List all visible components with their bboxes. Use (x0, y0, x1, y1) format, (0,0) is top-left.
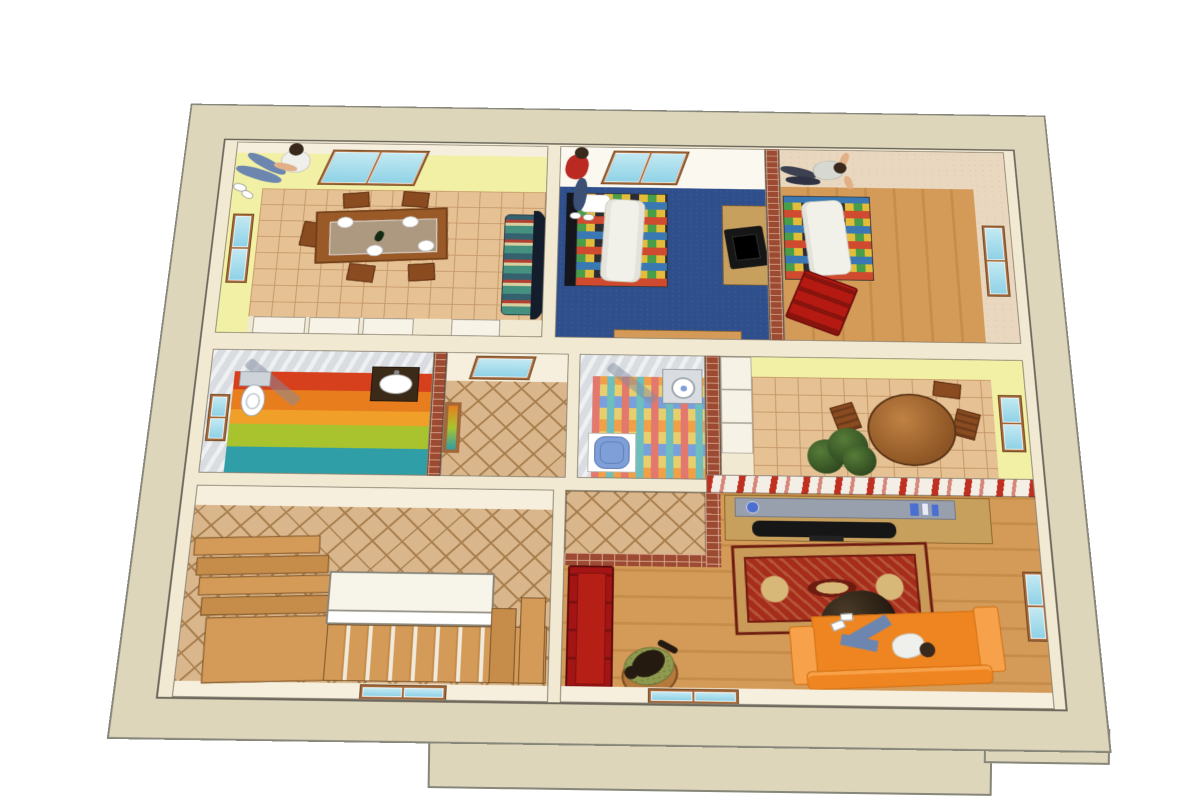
sink-basin (379, 374, 413, 394)
plate (366, 244, 383, 256)
dining-chair (343, 192, 370, 209)
room-breakfast-corridor (720, 356, 1035, 484)
bath1-toilet (235, 371, 271, 418)
bedroom1-tv-cabinet (722, 205, 769, 285)
wardrobe-divider (722, 422, 753, 424)
brick-wall-corridor (705, 356, 721, 480)
room-stair-hall (172, 485, 554, 703)
bed-duvet (599, 198, 645, 283)
orange-sofa (788, 604, 1009, 694)
hall-skylight-window (469, 356, 537, 380)
plant-foliage (842, 445, 877, 476)
floorplan-stage (0, 0, 1200, 800)
tv-stand (809, 535, 843, 541)
living-sideboard (724, 495, 993, 545)
dining-sofa (501, 214, 546, 315)
stair-step (198, 575, 338, 596)
bath2-blue-toilet (587, 433, 636, 473)
person-head (833, 162, 846, 173)
stair-step (488, 608, 516, 683)
rainbow-door-panel (442, 402, 461, 453)
tv-screen (732, 234, 761, 261)
vestibule-brick-column (705, 493, 721, 568)
red-sofa (565, 565, 614, 690)
dining-chair (408, 263, 435, 282)
potted-plant (806, 427, 877, 479)
dining-sideboard (362, 318, 414, 336)
toilet-lid-line (600, 441, 625, 464)
room-bathroom-rainbow (198, 349, 434, 476)
sink-drain (681, 386, 687, 392)
dining-chair (402, 191, 430, 208)
stair-step (518, 597, 546, 684)
person-shoe (583, 214, 595, 221)
shelf-book (910, 503, 919, 515)
room-dining (215, 142, 549, 338)
room-bedroom-right (779, 149, 1022, 344)
shelf-book (921, 503, 929, 516)
stair-step (196, 555, 330, 576)
wardrobe-divider (722, 389, 753, 391)
stair-landing-balustrade (325, 571, 494, 627)
bath1-vanity-sink (370, 366, 420, 401)
living-vestibule-tiles (564, 491, 706, 562)
bedroom2-bed (783, 196, 875, 281)
shelf-logo-disc (746, 501, 759, 513)
corridor-right-window (998, 395, 1027, 452)
house-floorplan (107, 104, 1112, 753)
dining-chair (346, 263, 376, 283)
dining-skylight-window (317, 150, 430, 186)
dining-sideboard (451, 319, 501, 337)
dining-sideboard (308, 317, 360, 335)
stairhall-bottom-window (359, 684, 447, 701)
shelf-book (932, 505, 939, 517)
person-shoe (840, 613, 853, 621)
room-living (560, 490, 1055, 709)
dining-sideboard (252, 316, 306, 334)
corridor-wardrobe (720, 357, 753, 454)
room-landing-hall (440, 352, 569, 478)
living-bottom-window (648, 688, 739, 705)
dining-table (314, 208, 447, 264)
bath2-stone-sink (662, 369, 702, 404)
room-bedroom-blue (555, 146, 770, 340)
stair-step (193, 535, 320, 555)
person-shoe (570, 212, 582, 219)
room-bathroom-small (577, 354, 706, 480)
red-sofa-seat (575, 573, 606, 685)
bedroom1-skylight-window (601, 151, 690, 186)
